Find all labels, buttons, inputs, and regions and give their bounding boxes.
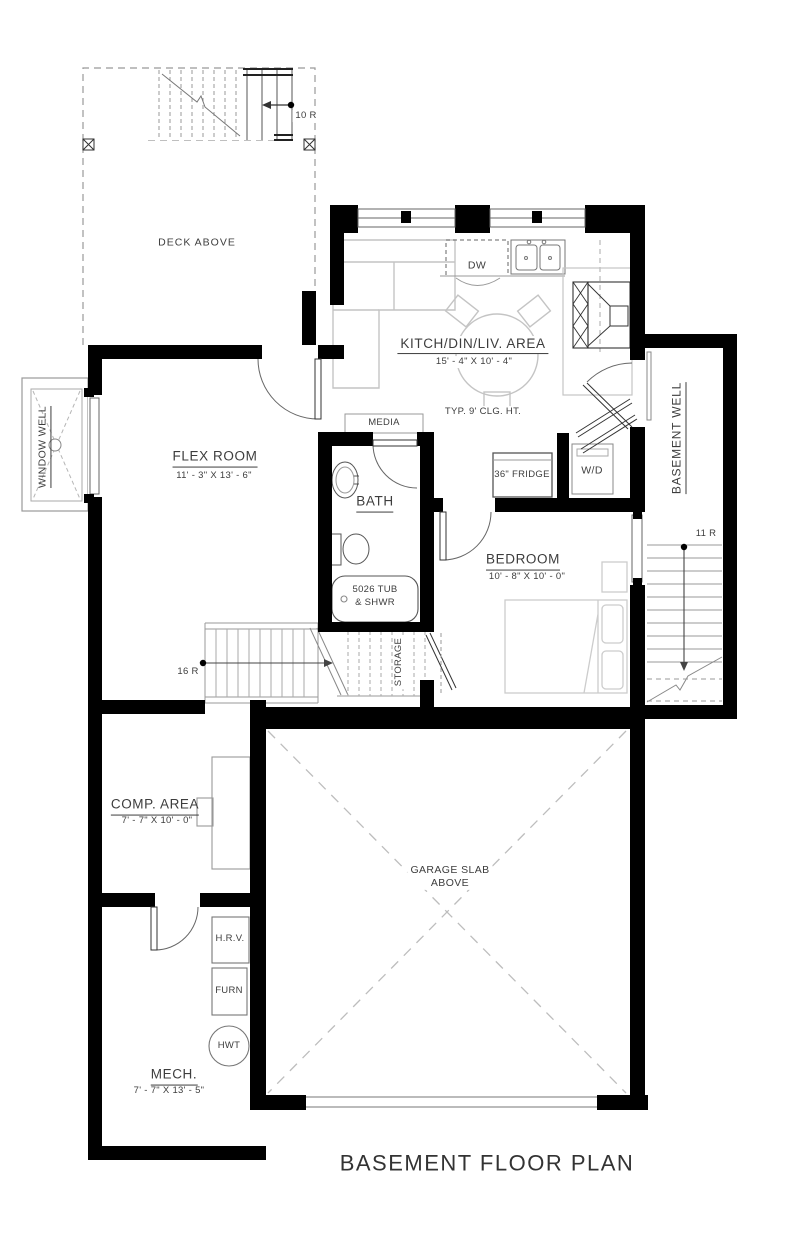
well-sidelite [647,352,651,420]
bedroom-dims: 10' - 8" X 10' - 0" [489,571,565,583]
ceiling-height-note: TYP. 9' CLG. HT. [442,406,524,418]
plan-title: BASEMENT FLOOR PLAN [340,1149,635,1177]
fireplace [563,268,632,395]
media-label: MEDIA [368,417,400,429]
comp-area-title: COMP. AREA [111,797,199,816]
garage-slab-x [268,731,626,1093]
bedroom-title: BEDROOM [486,552,560,571]
fridge-label: 36" FRIDGE [494,469,549,481]
window-well-label: WINDOW WELL [36,406,51,488]
main-stairs-16r [200,623,348,703]
tub-label-line1: 5026 TUB [352,584,397,596]
mech-title: MECH. [151,1067,198,1086]
bath-title: BATH [356,494,393,513]
deck-label: DECK ABOVE [158,236,236,249]
flex-room-dims: 11' - 3" X 13' - 6" [176,470,252,482]
storage-area [337,631,430,696]
bath-sink [332,462,359,498]
furnace-label: FURN [215,985,243,997]
window-well [22,378,88,511]
dishwasher-label: DW [468,259,486,272]
garage-slab-label: GARAGE SLAB ABOVE [407,864,492,890]
kitchen-sink [511,240,565,274]
deck-stair-risers-label: 10 R [292,110,319,122]
garage-slab-line1: GARAGE SLAB [410,864,489,877]
well-stairs-11r [647,544,722,702]
garage-slab-line2: ABOVE [410,877,489,890]
flex-window [84,388,102,503]
floor-plan-drawing [0,0,800,1257]
storage-label: STORAGE [393,635,405,689]
well-stair-risers-label: 11 R [693,528,720,540]
washer-dryer-label: W/D [581,464,603,477]
garage-door-sill [306,1095,597,1110]
bedroom-window [630,512,645,585]
tub-label-line2: & SHWR [355,597,395,609]
comp-desk [197,757,250,869]
basement-floor-plan: DECK ABOVE 10 R KITCH/DIN/LIV. AREA 15' … [0,0,800,1257]
flex-room-title: FLEX ROOM [173,449,258,468]
deck-stairs-10r [148,69,294,140]
hot-water-tank-label: HWT [218,1040,241,1052]
kitchen-area-dims: 15' - 4" X 10' - 4" [433,356,515,368]
main-stair-risers-label: 16 R [177,666,198,678]
comp-area-dims: 7' - 7" X 10' - 0" [122,815,193,827]
basement-well-label: BASEMENT WELL [670,382,687,494]
mech-dims: 7' - 7" X 13' - 5" [134,1085,205,1097]
toilet [331,534,369,565]
kitchen-area-title: KITCH/DIN/LIV. AREA [397,336,548,354]
hrv-label: H.R.V. [216,933,245,945]
